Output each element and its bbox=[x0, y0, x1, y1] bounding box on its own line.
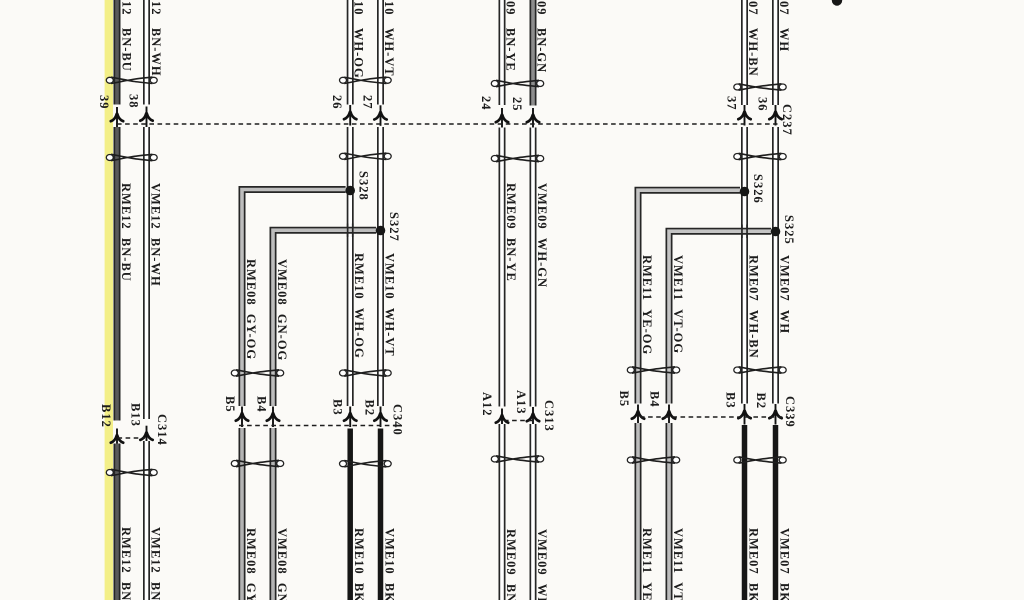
svg-text:S326: S326 bbox=[751, 174, 765, 204]
svg-text:RME11 YE-OG: RME11 YE-OG bbox=[640, 255, 654, 355]
svg-text:B5: B5 bbox=[617, 391, 631, 408]
svg-text:VME12 BN-WH: VME12 BN-WH bbox=[149, 183, 163, 287]
svg-text:RME07 WH-BN: RME07 WH-BN bbox=[747, 255, 761, 359]
svg-text:C340: C340 bbox=[391, 404, 405, 436]
svg-text:VME08 GN-OG: VME08 GN-OG bbox=[275, 528, 289, 600]
svg-text:38: 38 bbox=[127, 94, 141, 109]
svg-text:VME08 GN-OG: VME08 GN-OG bbox=[275, 259, 289, 361]
svg-text:B4: B4 bbox=[648, 391, 662, 408]
svg-text:37: 37 bbox=[725, 96, 739, 111]
svg-text:VME11 VT-OG: VME11 VT-OG bbox=[671, 528, 685, 600]
svg-text:C313: C313 bbox=[542, 400, 556, 432]
svg-text:C314: C314 bbox=[155, 414, 169, 446]
svg-text:A13: A13 bbox=[514, 390, 528, 415]
svg-text:A12: A12 bbox=[480, 392, 494, 417]
svg-text:26: 26 bbox=[330, 95, 344, 110]
svg-text:12 BN-WH: 12 BN-WH bbox=[149, 1, 163, 77]
svg-text:RME07 BK: RME07 BK bbox=[747, 528, 761, 600]
svg-text:RME11 YE-OG: RME11 YE-OG bbox=[640, 528, 654, 600]
svg-text:12 BN-BU: 12 BN-BU bbox=[120, 1, 134, 72]
svg-text:VME07 BK: VME07 BK bbox=[778, 528, 792, 600]
svg-text:VME09 WH-GN: VME09 WH-GN bbox=[535, 529, 549, 600]
svg-text:B5: B5 bbox=[223, 396, 237, 413]
svg-text:39: 39 bbox=[97, 95, 111, 110]
svg-text:36: 36 bbox=[756, 97, 770, 112]
svg-text:VME12 BN-WH: VME12 BN-WH bbox=[149, 527, 163, 600]
svg-text:RME10 WH-OG: RME10 WH-OG bbox=[352, 253, 366, 359]
svg-text:VME10 BK: VME10 BK bbox=[383, 528, 397, 600]
svg-text:B3: B3 bbox=[724, 392, 738, 409]
svg-text:B2: B2 bbox=[363, 400, 377, 417]
svg-text:C339: C339 bbox=[783, 396, 797, 428]
svg-text:25: 25 bbox=[510, 97, 524, 112]
svg-text:24: 24 bbox=[479, 96, 493, 111]
svg-text:27: 27 bbox=[361, 95, 375, 110]
svg-text:RME08 GY-OG: RME08 GY-OG bbox=[244, 259, 258, 360]
svg-text:07 WH: 07 WH bbox=[777, 1, 791, 52]
svg-text:RME09 BN-YE: RME09 BN-YE bbox=[504, 183, 518, 282]
svg-text:VME07 WH: VME07 WH bbox=[778, 255, 792, 334]
svg-text:B2: B2 bbox=[754, 393, 768, 410]
svg-text:10 WH-OG: 10 WH-OG bbox=[352, 1, 366, 79]
svg-text:RME12 BN-BU: RME12 BN-BU bbox=[119, 527, 133, 600]
svg-text:09 BN-GN: 09 BN-GN bbox=[535, 1, 549, 73]
svg-text:RME10 BK: RME10 BK bbox=[352, 528, 366, 600]
svg-text:RME08 GY-OG: RME08 GY-OG bbox=[244, 528, 258, 600]
svg-text:RME12 BN-BU: RME12 BN-BU bbox=[119, 183, 133, 282]
svg-text:B3: B3 bbox=[331, 399, 345, 416]
svg-text:S328: S328 bbox=[357, 171, 371, 201]
svg-text:VME09 WH-GN: VME09 WH-GN bbox=[535, 183, 549, 288]
svg-text:S325: S325 bbox=[782, 215, 796, 245]
svg-text:B13: B13 bbox=[129, 403, 143, 427]
svg-text:B12: B12 bbox=[99, 404, 113, 428]
svg-text:09 BN-YE: 09 BN-YE bbox=[504, 1, 518, 72]
svg-text:VME10 WH-VT: VME10 WH-VT bbox=[383, 253, 397, 357]
svg-text:B4: B4 bbox=[255, 396, 269, 413]
svg-text:10 WH-VT: 10 WH-VT bbox=[382, 1, 396, 77]
svg-text:VME11 VT-OG: VME11 VT-OG bbox=[671, 255, 685, 354]
svg-text:S327: S327 bbox=[387, 212, 401, 242]
svg-text:RME09 BN-YE: RME09 BN-YE bbox=[504, 529, 518, 600]
svg-text:07 WH-BN: 07 WH-BN bbox=[746, 1, 760, 77]
